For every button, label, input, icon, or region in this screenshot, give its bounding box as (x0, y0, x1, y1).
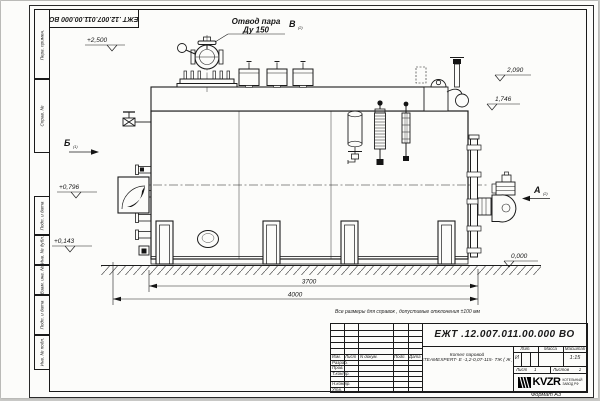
steam-outlet-dn-label: Ду 150 (242, 26, 270, 35)
tb-row-prov: Пров. (332, 366, 358, 370)
tb-company-name: KVZR (533, 377, 561, 388)
elev-2500-label: +2,500 (87, 37, 107, 44)
tb-doc-number: ЕЖТ .12.007.011.00.000 ВО (422, 324, 587, 346)
elev-1746-label: 1,746 (495, 96, 512, 103)
tolerance-note: Все размеры для справок , допустимые отк… (335, 309, 565, 315)
elev-0796-label: +0,796 (59, 184, 79, 191)
tb-col-data: Дата (409, 355, 422, 359)
rear-flange (467, 135, 481, 257)
tb-company-logo: KVZR КОТЕЛЬНЫЙ ЗАВОД РФ (513, 373, 587, 392)
view-b-label: Б (64, 138, 71, 148)
steam-outlet-valve (177, 35, 237, 93)
view-b-sub: (1) (73, 145, 78, 149)
view-a-sub: (2) (543, 192, 548, 196)
drawing-sheet: Перв. примен. Справ. № Подп. и дата Инв.… (1, 1, 598, 398)
kvzr-logo-icon (518, 377, 531, 388)
tb-row-razrab: Разраб. (332, 361, 358, 365)
control-box (424, 87, 448, 111)
tb-col-list: Лист (345, 355, 358, 359)
view-v-sub: (2) (298, 26, 303, 30)
tb-row-utv: Утв. (332, 388, 358, 392)
tb-massa-label: Масса (538, 346, 563, 352)
ground-line (101, 266, 541, 276)
boiler-body (137, 111, 487, 264)
dim-3700-label: 3700 (302, 279, 317, 286)
tb-scale-value: 1:15 (563, 352, 587, 366)
side-valve-icon (123, 112, 151, 126)
format-label: Формат А3 (506, 392, 586, 398)
elev-2090-label: 2,090 (506, 67, 524, 74)
tb-company-sub: КОТЕЛЬНЫЙ ЗАВОД РФ (562, 379, 582, 386)
view-a-label: А (533, 185, 541, 195)
burner (118, 177, 149, 213)
dim-4000-label: 4000 (288, 292, 303, 299)
view-a-arrow-icon (522, 196, 530, 201)
tb-sheets-value: 2 (579, 368, 581, 372)
tb-sheet-value: 1 (534, 368, 536, 372)
tb-sheets-label: Листов (553, 368, 569, 372)
manhole (198, 231, 219, 248)
elev-0000-label: 0,000 (511, 253, 528, 260)
tb-row-tkontr: Т.контр. (332, 372, 358, 376)
safety-valves (239, 62, 313, 88)
tb-sheet-label: Лист (516, 368, 527, 372)
fan-unit (478, 172, 516, 222)
view-v-label: В (289, 19, 296, 29)
tb-col-ndokum: N докум. (360, 355, 392, 359)
tb-lit-value: И (513, 352, 521, 366)
view-b-arrow-icon (91, 149, 99, 154)
tb-col-izm: Изм. (332, 355, 345, 359)
steam-outlet-callout: Отвод пара Ду 150 (215, 17, 285, 42)
tb-row-nkontr: Н.контр. (332, 382, 358, 386)
elev-0143-label: +0,143 (54, 238, 74, 245)
tb-col-podp: Подп. (394, 355, 408, 359)
title-block: Изм. Лист N докум. Подп. Дата Разраб. Пр… (330, 323, 588, 393)
tb-product-name: Котел паровой STEAMEXPERT- Е -1,2-0,07-1… (422, 347, 512, 371)
